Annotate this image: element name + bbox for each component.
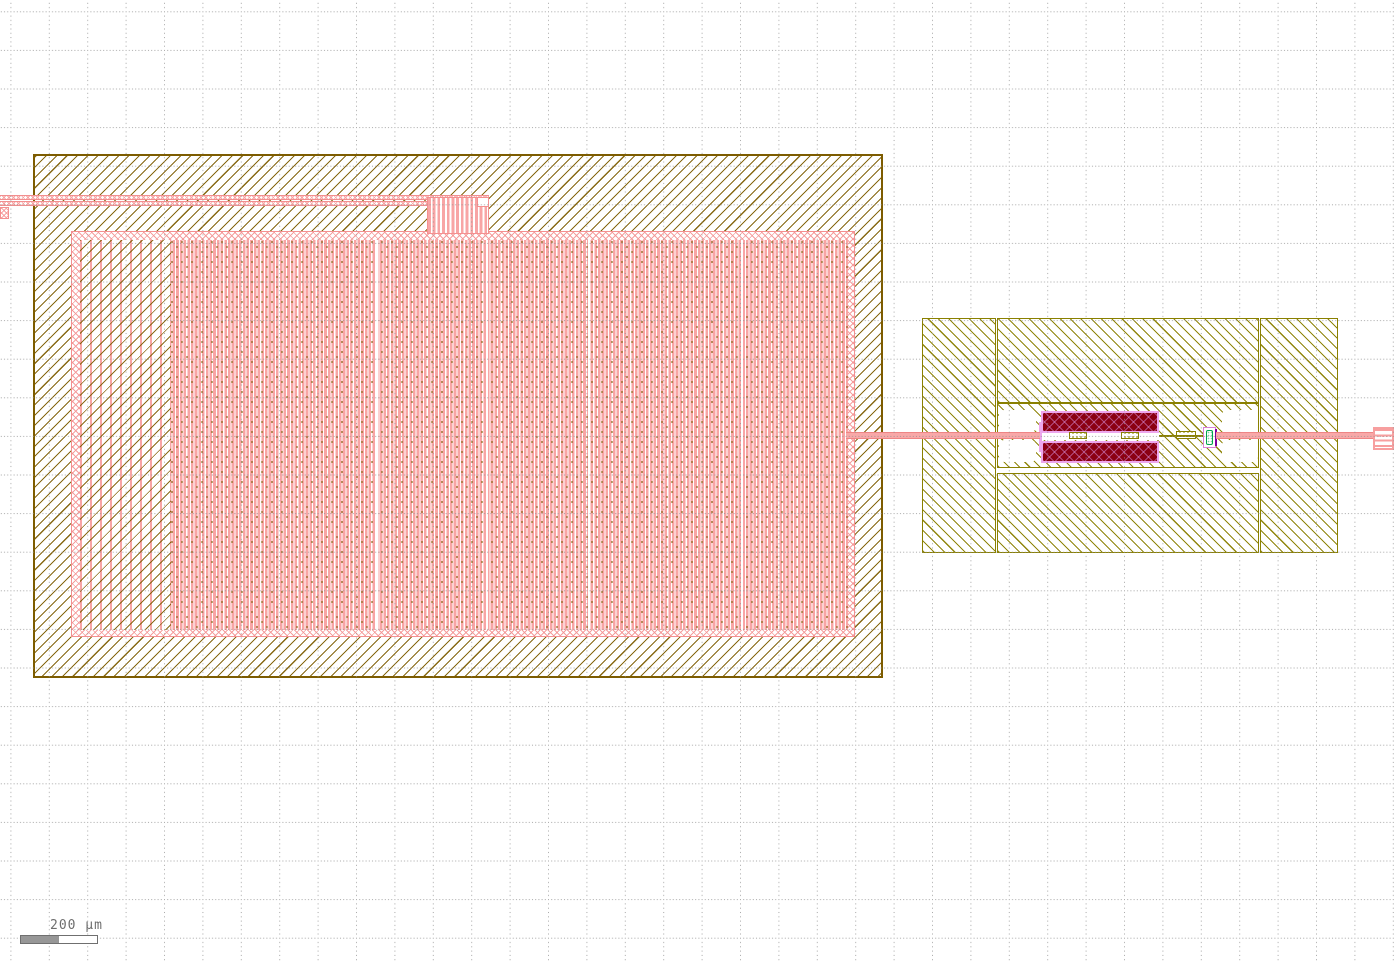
contact-pad-top-left[interactable] <box>999 410 1036 432</box>
green-via-bar <box>1206 430 1213 445</box>
feed-stub-notch <box>477 198 488 207</box>
trace-band <box>0 195 489 200</box>
port-pin-dots <box>1378 435 1391 437</box>
pink-mesh-sparse-column <box>80 240 171 630</box>
pink-mesh-region[interactable] <box>71 231 855 637</box>
contact-pad-bottom-right[interactable] <box>1222 440 1258 462</box>
scale-bar-label: 200 µm <box>50 918 103 933</box>
via-contact-2[interactable] <box>1121 432 1139 439</box>
input-trace-bundle[interactable] <box>0 195 489 206</box>
feed-stub-block[interactable] <box>427 197 489 234</box>
module-bottom-panel[interactable] <box>997 473 1259 553</box>
layout-canvas[interactable]: 200 µm <box>0 0 1394 961</box>
scale-bar <box>20 935 98 944</box>
mesh-column-separator <box>376 240 378 630</box>
module-top-panel[interactable] <box>997 318 1259 403</box>
scale-bar-fill <box>21 936 59 943</box>
center-channel <box>1036 432 1159 440</box>
interconnect-trace-left[interactable] <box>846 432 1040 439</box>
contact-pad-bottom-left[interactable] <box>999 440 1036 462</box>
mesh-column-separator <box>486 240 488 630</box>
maroon-plate-top[interactable] <box>1041 411 1159 433</box>
mesh-column-separator <box>741 240 743 630</box>
pink-mesh-fill <box>80 240 848 630</box>
contact-pad-top-right[interactable] <box>1222 410 1258 432</box>
trace-band <box>0 201 489 206</box>
edge-clipped-shape[interactable] <box>0 207 9 219</box>
interconnect-trace-right[interactable] <box>1216 432 1373 439</box>
mesh-column-separator <box>588 240 590 630</box>
port-pin-marker[interactable] <box>1373 427 1394 450</box>
channel-line <box>1159 435 1205 437</box>
via-contact-1[interactable] <box>1069 432 1087 439</box>
maroon-plate-bottom[interactable] <box>1041 441 1159 463</box>
